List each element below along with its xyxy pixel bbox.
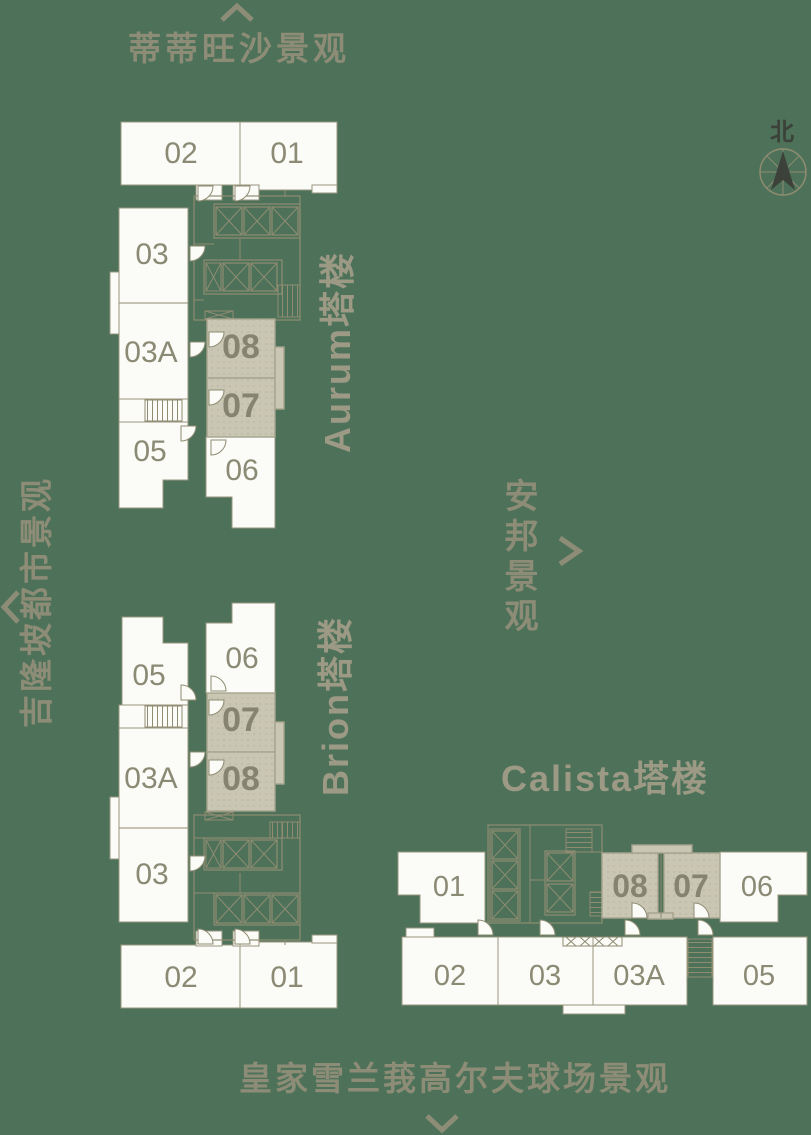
- balcony-tab: [312, 935, 337, 943]
- balcony-tab: [312, 185, 337, 193]
- balcony-tab: [406, 928, 434, 937]
- unit-aurum-03-03A[interactable]: [119, 208, 188, 400]
- stairs-icon: [590, 892, 602, 916]
- unit-label-calista-03: 03: [529, 960, 561, 992]
- unit-label-brion-03A: 03A: [124, 762, 177, 795]
- tower-name-aurum: Aurum塔楼: [317, 251, 358, 453]
- balcony-tab: [110, 272, 119, 334]
- tower-name-brion: Brion塔楼: [315, 616, 356, 796]
- tower-name-calista: Calista塔楼: [501, 758, 709, 799]
- unit-label-aurum-03A: 03A: [124, 336, 177, 369]
- unit-label-aurum-06: 06: [225, 454, 258, 487]
- unit-label-brion-08: 08: [222, 760, 260, 798]
- compass-north-label: 北: [770, 119, 794, 146]
- floor-plan-canvas: 02 01 03 03A 05 08 07 06 Aurum塔楼: [0, 0, 811, 1135]
- unit-label-calista-07: 07: [673, 868, 709, 904]
- unit-label-aurum-05: 05: [133, 435, 166, 468]
- unit-label-calista-08: 08: [612, 868, 648, 904]
- unit-label-aurum-07: 07: [222, 387, 260, 425]
- balcony-tab: [275, 347, 284, 409]
- unit-label-calista-02: 02: [434, 960, 466, 992]
- unit-label-brion-07: 07: [222, 701, 260, 739]
- unit-label-calista-05: 05: [743, 960, 775, 992]
- unit-label-calista-03A: 03A: [613, 960, 665, 992]
- unit-label-aurum-01: 01: [270, 137, 303, 170]
- unit-label-brion-05: 05: [132, 659, 165, 692]
- balcony-tab: [563, 1005, 625, 1014]
- unit-brion-03A-03[interactable]: [119, 728, 188, 922]
- stairs-icon: [145, 400, 182, 421]
- site-plan: 02 01 03 03A 05 08 07 06 Aurum塔楼: [0, 0, 811, 1135]
- view-label-south: 皇家雪兰莪高尔夫球场景观: [239, 1060, 671, 1097]
- stairs-icon: [270, 822, 300, 838]
- balcony-tab: [632, 845, 692, 853]
- view-label-west: 吉隆坡都市景观: [18, 476, 55, 728]
- unit-label-aurum-02: 02: [164, 137, 197, 170]
- unit-label-brion-03: 03: [135, 858, 168, 891]
- unit-label-calista-01: 01: [433, 871, 465, 903]
- unit-label-aurum-08: 08: [222, 328, 260, 366]
- balcony-tab: [275, 722, 284, 784]
- stairs-icon: [278, 285, 300, 317]
- unit-label-brion-02: 02: [164, 961, 197, 994]
- stairs-icon: [145, 706, 182, 727]
- stairs-icon: [688, 939, 712, 977]
- view-label-north: 蒂蒂旺沙景观: [128, 30, 350, 67]
- unit-label-aurum-03: 03: [135, 238, 168, 271]
- stairs-icon: [566, 829, 592, 852]
- view-label-east: 安邦景观: [501, 478, 535, 638]
- balcony-tab: [110, 797, 119, 859]
- unit-label-brion-01: 01: [270, 961, 303, 994]
- unit-label-brion-06: 06: [225, 642, 258, 675]
- unit-label-calista-06: 06: [741, 871, 773, 903]
